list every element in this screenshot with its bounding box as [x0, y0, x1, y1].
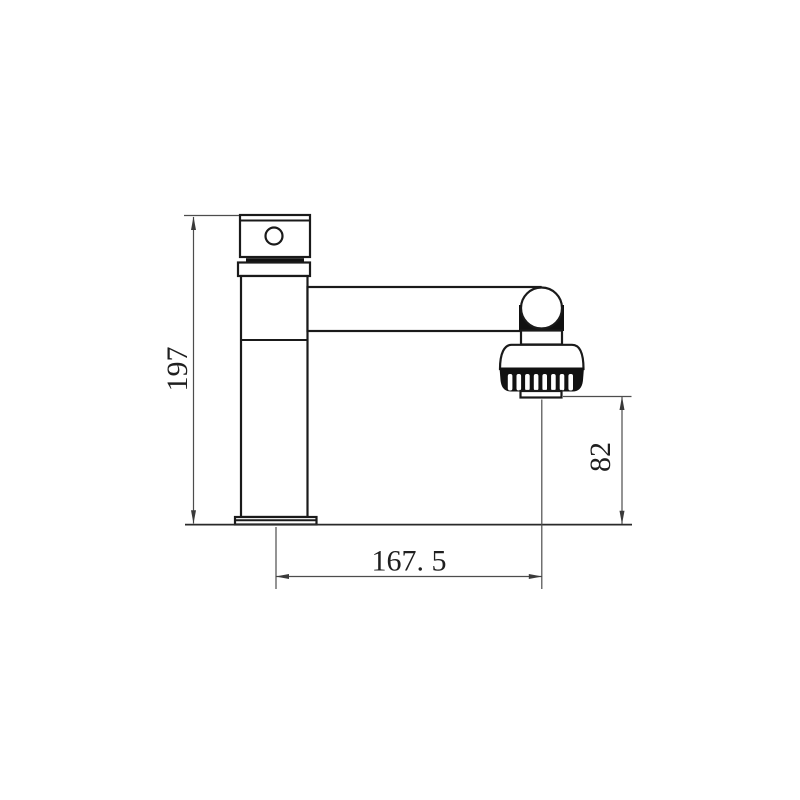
reach-dimension-label: 167. 5: [372, 545, 447, 578]
dimension-reach: 167. 5: [276, 400, 543, 590]
reach-arrow-left: [276, 574, 290, 579]
dimension-height: 197: [161, 216, 239, 524]
height-arrow-up: [191, 217, 196, 231]
outlet-arrow-down: [620, 511, 625, 525]
spout-arm: [308, 287, 541, 331]
ball-joint: [521, 288, 562, 329]
reach-arrow-right: [529, 574, 543, 579]
drawing-page: 197 167. 5 82: [0, 0, 800, 800]
handle-screw-hole: [266, 228, 283, 245]
outlet-dimension-label: 82: [584, 442, 617, 472]
spray-neck: [521, 331, 562, 345]
collar: [238, 263, 310, 277]
dimension-outlet-height: 82: [563, 397, 632, 525]
spray-outlet-cap: [521, 391, 562, 398]
spray-shoulder: [500, 345, 584, 369]
outlet-arrow-up: [620, 397, 625, 411]
body: [241, 276, 308, 517]
handle-joint-gap: [246, 258, 304, 261]
faucet-technical-drawing: 197 167. 5 82: [0, 0, 800, 800]
height-dimension-label: 197: [161, 347, 194, 392]
height-arrow-down: [191, 510, 196, 524]
